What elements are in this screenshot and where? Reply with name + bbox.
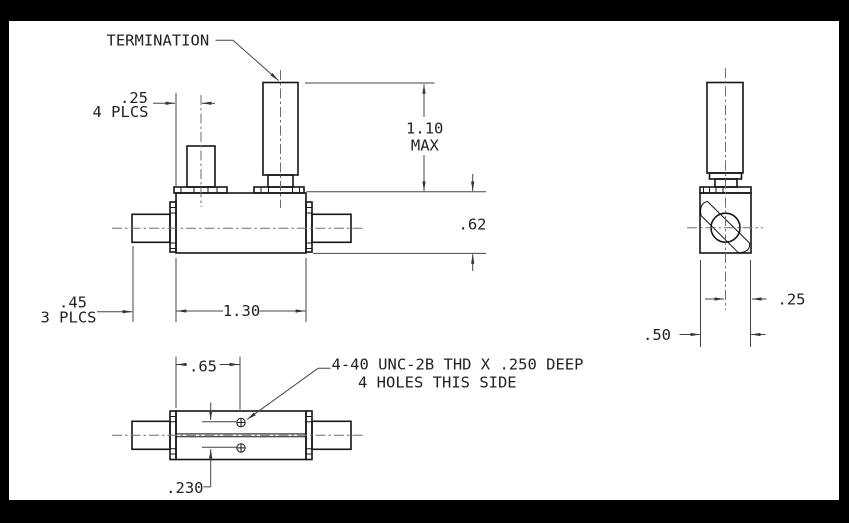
side-dim-25-value: .25 bbox=[778, 291, 806, 309]
thread-note-line1: 4-40 UNC-2B THD X .250 DEEP bbox=[332, 356, 584, 374]
side-dim-50-value: .50 bbox=[643, 326, 671, 344]
dim-62-value: .62 bbox=[459, 216, 487, 234]
dim-110-qualifier: MAX bbox=[411, 137, 440, 155]
dim-25-qualifier: 4 PLCS bbox=[93, 103, 149, 121]
tapped-hole-lower bbox=[237, 444, 245, 452]
termination-label: TERMINATION bbox=[107, 32, 210, 50]
dim-110-value: 1.10 bbox=[406, 120, 443, 138]
dim-130-value: 1.30 bbox=[223, 302, 260, 320]
thread-note-line2: 4 HOLES THIS SIDE bbox=[358, 374, 517, 392]
engineering-drawing: TERMINATION .25 4 PLCS 1.10 MAX .62 .45 … bbox=[0, 0, 849, 523]
dim-45-qualifier: 3 PLCS bbox=[41, 309, 97, 327]
dim-65-value: .65 bbox=[189, 358, 217, 376]
dim-230-value: .230 bbox=[166, 479, 203, 497]
drawing-page: TERMINATION .25 4 PLCS 1.10 MAX .62 .45 … bbox=[0, 0, 849, 523]
tapped-hole-upper bbox=[237, 418, 245, 426]
